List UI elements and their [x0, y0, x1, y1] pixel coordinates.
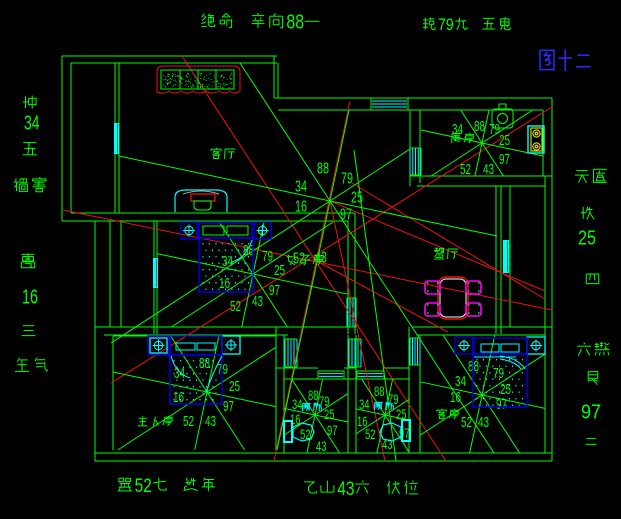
svg-text:52: 52 — [183, 413, 194, 430]
svg-text:34: 34 — [292, 396, 303, 412]
svg-text:79: 79 — [438, 15, 454, 34]
svg-text:25: 25 — [324, 406, 335, 422]
svg-text:16: 16 — [450, 389, 461, 406]
svg-text:16: 16 — [219, 275, 230, 292]
svg-text:88: 88 — [199, 355, 210, 372]
svg-text:52: 52 — [460, 161, 471, 178]
svg-text:16: 16 — [295, 199, 307, 216]
svg-text:97: 97 — [499, 151, 510, 168]
svg-text:88: 88 — [317, 161, 329, 178]
svg-text:88: 88 — [474, 118, 485, 135]
svg-text:43: 43 — [483, 161, 494, 178]
svg-text:97: 97 — [340, 207, 352, 224]
svg-text:52: 52 — [461, 414, 472, 431]
svg-text:52: 52 — [135, 476, 152, 497]
svg-text:25: 25 — [499, 132, 510, 149]
svg-text:43: 43 — [337, 479, 354, 500]
svg-text:25: 25 — [351, 190, 363, 207]
svg-text:79: 79 — [493, 365, 504, 382]
svg-text:34: 34 — [359, 396, 370, 412]
svg-text:43: 43 — [316, 438, 327, 454]
svg-text:97: 97 — [269, 282, 280, 299]
svg-text:43: 43 — [478, 414, 489, 431]
svg-text:88: 88 — [374, 383, 385, 399]
svg-text:34: 34 — [24, 113, 40, 135]
svg-text:79: 79 — [341, 171, 353, 188]
svg-text:16: 16 — [22, 287, 38, 309]
svg-text:88: 88 — [308, 387, 319, 403]
svg-text:34: 34 — [455, 373, 466, 390]
svg-text:52: 52 — [365, 426, 376, 442]
svg-text:97: 97 — [496, 396, 507, 413]
svg-text:88: 88 — [286, 12, 304, 34]
svg-text:25: 25 — [229, 378, 240, 395]
svg-text:25: 25 — [274, 262, 285, 279]
svg-text:43: 43 — [252, 293, 263, 310]
svg-text:97: 97 — [327, 422, 338, 438]
svg-text:25: 25 — [578, 228, 596, 250]
svg-text:97: 97 — [581, 402, 601, 424]
svg-text:97: 97 — [223, 398, 234, 415]
svg-text:43: 43 — [315, 250, 327, 267]
svg-text:34: 34 — [295, 179, 307, 196]
svg-text:52: 52 — [230, 298, 241, 315]
svg-text:43: 43 — [205, 413, 216, 430]
svg-text:79: 79 — [262, 248, 273, 265]
svg-text:34: 34 — [222, 253, 233, 270]
